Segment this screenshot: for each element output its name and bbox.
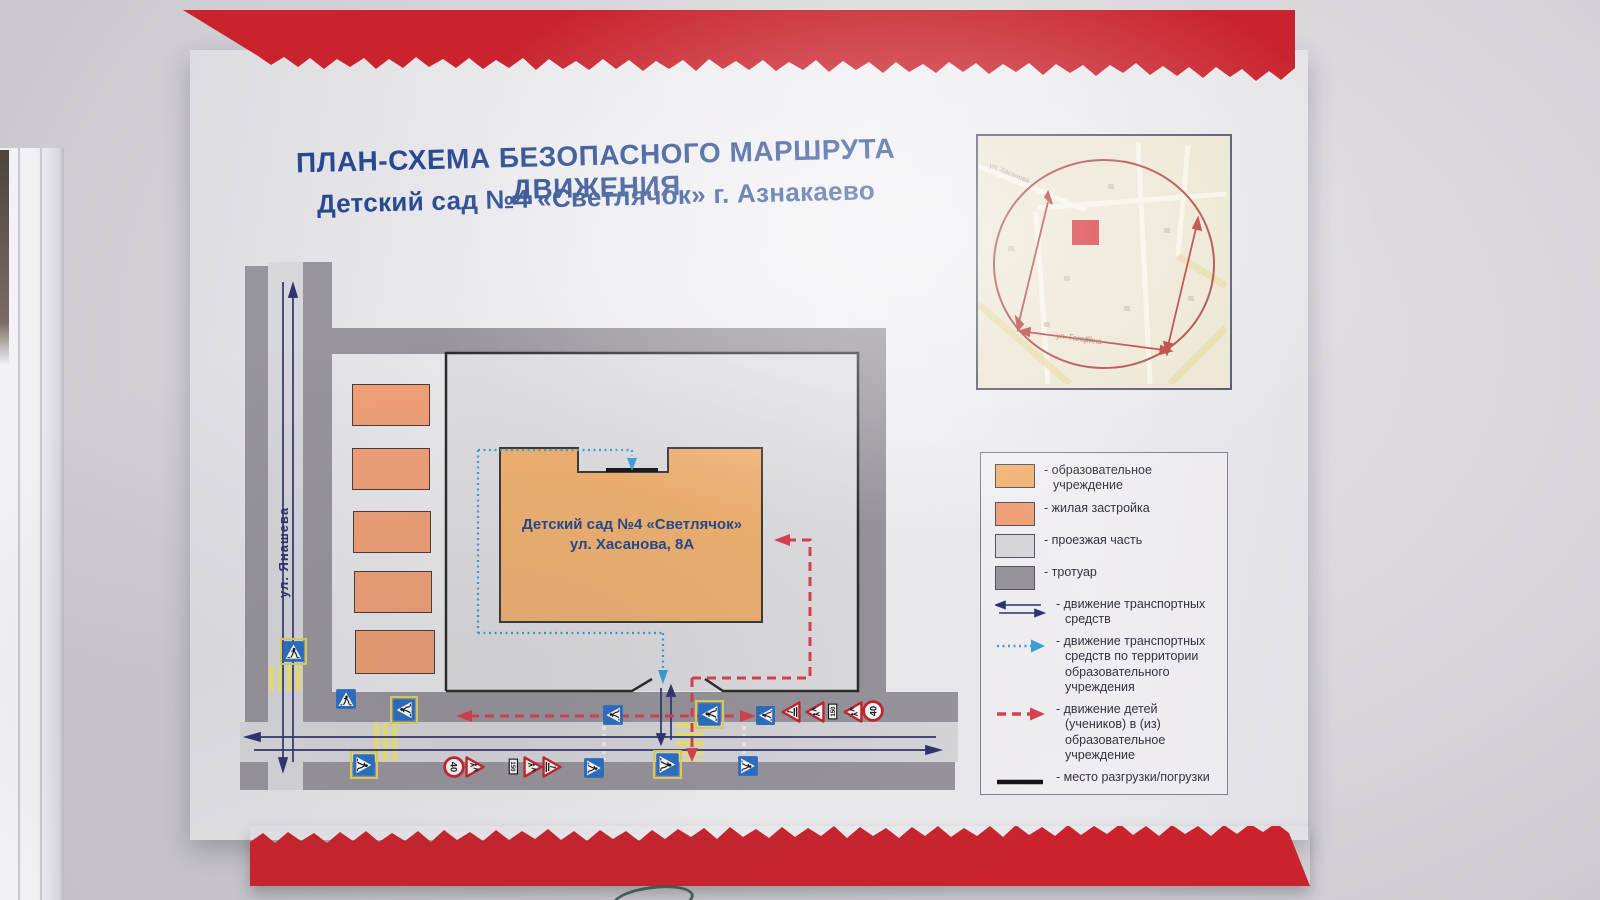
- territory-vehicle-arrowhead: [658, 670, 668, 684]
- legend-label: - тротуар: [1044, 565, 1098, 580]
- legend-swatch-residential: [995, 502, 1035, 526]
- legend-label: - проезжая часть: [1044, 533, 1142, 548]
- kindergarten-label: Детский сад №4 «Светлячок» ул. Хасанова,…: [505, 515, 759, 556]
- legend-label: - движение детей (учеников) в (из) образ…: [1056, 702, 1217, 763]
- road-marking-dashes: [604, 726, 744, 760]
- kindergarten-label-line1: Детский сад №4 «Светлячок»: [505, 515, 759, 535]
- legend-item-territory-vehicles: - движение транспортных средств по терри…: [995, 634, 1217, 695]
- legend-loading-line-icon: [995, 770, 1047, 794]
- legend-red-dashed-arrow-icon: [995, 702, 1047, 726]
- legend-dotted-arrow-icon: [995, 634, 1047, 658]
- legend-label: - движение транспортных средств по терри…: [1056, 634, 1217, 695]
- legend-label: - жилая застройка: [1044, 501, 1150, 516]
- legend-label: - движение транспортных средств: [1056, 597, 1217, 628]
- map-linework: [0, 0, 1600, 900]
- legend-item-residential: - жилая застройка: [995, 501, 1217, 526]
- legend-label: - образовательное учреждение: [1044, 463, 1217, 494]
- legend-item-loading: - место разгрузки/погрузки: [995, 770, 1217, 794]
- legend-item-children: - движение детей (учеников) в (из) образ…: [995, 702, 1217, 763]
- legend-item-sidewalk: - тротуар: [995, 565, 1217, 590]
- legend-swatch-sidewalk: [995, 566, 1035, 590]
- wall-photo: ПЛАН-СХЕМА БЕЗОПАСНОГО МАРШРУТА ДВИЖЕНИЯ…: [0, 0, 1600, 900]
- legend-item-roadway: - проезжая часть: [995, 533, 1217, 558]
- inset-streets-secondary: [978, 256, 1226, 384]
- legend: - образовательное учреждение - жилая зас…: [980, 452, 1228, 795]
- legend-label: - место разгрузки/погрузки: [1056, 770, 1210, 785]
- inset-radius-circle: [994, 160, 1214, 368]
- street-name-label: ул. Янашева: [276, 478, 291, 598]
- legend-swatch-edu: [995, 464, 1035, 488]
- legend-item-vehicles: - движение транспортных средств: [995, 597, 1217, 628]
- legend-swatch-roadway: [995, 534, 1035, 558]
- legend-item-edu: - образовательное учреждение: [995, 463, 1217, 494]
- inset-city-map: ул. Гагарина ул. Хасанова: [976, 134, 1232, 390]
- inset-kindergarten-marker: [1072, 220, 1099, 245]
- kindergarten-label-line2: ул. Хасанова, 8А: [505, 535, 759, 555]
- legend-vehicle-arrows-icon: [995, 597, 1047, 621]
- inset-blocks: [1008, 184, 1194, 341]
